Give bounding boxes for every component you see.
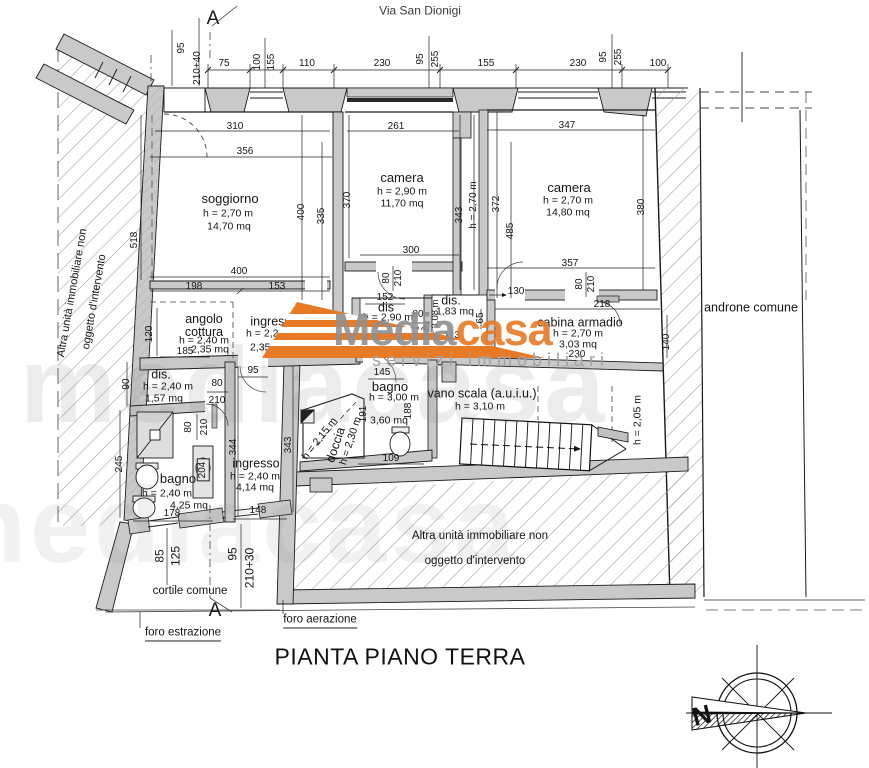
dim: 140 — [662, 334, 673, 351]
dim: 148 — [250, 506, 267, 517]
dim: 65 — [476, 312, 487, 323]
room-height: h = 2,15 m — [300, 416, 339, 462]
dim: 218 — [594, 300, 611, 311]
room-area: 4,25 mq — [170, 500, 208, 511]
room-height: h = 2,70 m — [543, 195, 593, 206]
androne-outline — [700, 52, 868, 610]
dim: 109 — [383, 454, 400, 465]
section-marker-bottom: A — [209, 601, 222, 621]
dim: 100 — [253, 54, 264, 71]
dim: 155 — [267, 54, 278, 71]
room-height: h = 2,30 m — [338, 416, 364, 467]
dim: 210 — [410, 327, 427, 338]
other-unit-note: Altra unità immobiliare non — [56, 228, 90, 358]
dim: 485 — [506, 223, 517, 240]
dim: 80 — [575, 278, 586, 289]
dim: 210+30 — [244, 548, 257, 588]
room-label-ingresso: ingresso — [250, 315, 297, 328]
room-height: h = 3,00 m — [369, 392, 419, 403]
note-foro-aerazione: foro aerazione — [283, 613, 357, 628]
room-area: 3,03 mq — [559, 339, 597, 350]
dim: 343 — [455, 207, 466, 224]
dim: 95 — [177, 42, 188, 53]
dim: 347 — [559, 121, 576, 132]
room-area: 11,70 mq — [381, 198, 424, 209]
room-area: 4,14 mq — [236, 482, 274, 493]
room-height: h = 2,90 m — [363, 312, 413, 323]
dim: 185 — [177, 347, 194, 358]
room-height: h = 2,40 m — [142, 488, 192, 499]
dim: 245 — [115, 456, 126, 473]
watermark-logo-text: Mediacasa — [333, 304, 552, 356]
room-label-cabina-armadio: cabina armadio — [537, 316, 622, 329]
room-area: 1,83 mq — [436, 306, 474, 317]
other-unit-note: oggetto d'intervento — [81, 254, 109, 351]
dim: 400 — [297, 204, 308, 221]
floor-plan-drawing: N — [0, 0, 869, 768]
dim: 155 — [478, 59, 495, 70]
dim: 370 — [343, 192, 354, 209]
room-label-camera: camera — [380, 171, 423, 185]
room-height: h = 2,20 m — [246, 328, 296, 339]
dim: 230 — [570, 59, 587, 70]
section-marker-top: A — [207, 9, 220, 29]
dim: 518 — [130, 232, 141, 249]
room-height: h = 2,40 m — [179, 335, 229, 346]
cortile-walls — [96, 500, 292, 612]
dim: 130 — [508, 287, 525, 298]
room-height: h = 3,10 m — [455, 401, 505, 412]
watermark-text: mediacasa — [0, 462, 518, 587]
dim: 210 — [587, 276, 598, 293]
hatched-other-unit-left — [58, 46, 148, 526]
other-unit-note: Altra unità immobiliare non — [412, 530, 548, 542]
street-name: Via San Dionigi — [379, 5, 461, 18]
room-label-vano-scala: vano scala (a.u.i.u.) — [427, 387, 536, 400]
dim: 255 — [614, 49, 625, 66]
dim: 400 — [231, 267, 248, 278]
dim: 357 — [562, 259, 579, 270]
dim: 75 — [218, 59, 229, 70]
dim: 210 — [200, 419, 211, 436]
dim: 335 — [317, 208, 328, 225]
floor-plan-page: N mediacasa mediacasa Via San Dionigi A … — [0, 0, 869, 768]
left-wall — [124, 86, 164, 522]
dim: 204 — [197, 459, 210, 482]
dim: 210 — [209, 396, 226, 407]
dim: 80 — [211, 379, 222, 390]
dim: 153 — [269, 282, 286, 293]
room-label-bagno: bagno — [160, 472, 196, 486]
dim: 90 — [122, 378, 133, 389]
dim: 80 — [184, 421, 195, 432]
dim: h = 2,70 m — [469, 181, 480, 229]
dim: 95 — [227, 547, 240, 560]
internal-walls — [130, 110, 663, 522]
dim: 145 — [374, 368, 391, 379]
room-area: 2,35 mq — [250, 342, 288, 353]
room-area: 1,57 mq — [145, 393, 183, 404]
room-height: h = 2,70 m — [203, 208, 253, 219]
dim: 113 — [444, 331, 460, 342]
room-label-androne: androne comune — [704, 301, 798, 314]
dim: 300 — [403, 246, 420, 257]
corner-entry-steps — [36, 34, 154, 124]
room-label-dis: dis — [378, 301, 394, 314]
bathroom-fixtures — [133, 410, 410, 518]
north-letter: N — [689, 698, 714, 732]
dim: 261 — [388, 122, 405, 133]
room-label-dis: dis. — [151, 368, 170, 381]
dim: 310 — [227, 122, 244, 133]
dim: 85 — [154, 549, 167, 562]
mediacasa-sail-icon — [0, 0, 869, 768]
dim: 80 — [412, 310, 423, 321]
watermark-tagline: servizi immobiliari — [372, 350, 609, 371]
dim: 120 — [145, 326, 156, 343]
dim: 198 — [186, 282, 203, 293]
room-height: h = 2,40 m — [230, 471, 280, 482]
dim: 95 — [247, 366, 258, 377]
agency-watermark: Mediacasa servizi immobiliari — [0, 0, 869, 768]
dim: 230 — [374, 59, 391, 70]
dim: 255 — [431, 51, 442, 68]
dim: 178 — [164, 509, 181, 520]
dimension-lines — [120, 6, 671, 628]
faint-watermark: mediacasa mediacasa — [0, 0, 869, 768]
dim: 343 — [284, 437, 295, 454]
dim: 100 — [650, 59, 667, 70]
watermark-text: mediacasa — [20, 322, 608, 447]
right-wall-strip — [655, 88, 704, 597]
room-label-angolo-cottura: angolo cottura — [172, 313, 236, 339]
room-height: h = 2,40 m — [143, 381, 193, 392]
room-label-camera: camera — [547, 181, 590, 195]
room-area: 3,60 mq — [370, 415, 408, 426]
dim: 356 — [237, 147, 254, 158]
dashed-lines — [150, 32, 620, 612]
room-height: h = 2,90 m — [377, 186, 427, 197]
logo-media: Media — [333, 304, 456, 355]
page-title: PIANTA PIANO TERRA — [275, 644, 526, 671]
room-area: 14,70 mq — [207, 221, 251, 232]
compass-north-icon: N — [686, 645, 832, 768]
room-area: 2,35 mq — [191, 344, 229, 355]
dim: 110 — [299, 59, 315, 70]
room-label-doccia: doccia — [324, 426, 348, 464]
dim: 210+40 — [193, 51, 204, 85]
dim: 152 — [377, 293, 394, 304]
dim: 191 — [359, 406, 370, 423]
note-foro-estrazione: foro estrazione — [145, 626, 221, 641]
room-height: h = 3,08 m — [431, 299, 441, 344]
dim: 372 — [492, 196, 503, 213]
room-label-cortile: cortile comune — [153, 585, 228, 597]
room-area: 14,80 mq — [546, 207, 590, 218]
top-wall — [164, 88, 688, 138]
logo-casa: casa — [456, 304, 552, 355]
room-label-ingresso: ingresso — [232, 457, 279, 470]
room-label-dis: dis. — [441, 294, 460, 307]
dim: 344 — [229, 439, 240, 456]
room-height: h = 2,70 m — [553, 328, 603, 339]
dim: 80 — [382, 272, 393, 283]
dim: 188 — [404, 403, 415, 420]
stairs — [460, 418, 628, 471]
room-label-bagno: bagno — [372, 380, 408, 394]
room-label-soggiorno: soggiorno — [201, 192, 258, 206]
dim: 380 — [637, 199, 648, 216]
room-area: 1,94 mq — [363, 325, 401, 336]
dim: 95 — [599, 51, 610, 62]
dim: 95 — [416, 53, 427, 64]
labels-layer: Via San Dionigi A A 75 100 155 110 230 9… — [0, 0, 869, 768]
other-unit-note: oggetto d'intervento — [425, 555, 526, 567]
dim: 125 — [170, 546, 183, 566]
dim: 210 — [394, 270, 405, 287]
dim: 230 — [569, 350, 586, 361]
room-height: h = 2,05 m — [632, 395, 643, 445]
hatched-other-unit-bottom — [105, 362, 695, 612]
